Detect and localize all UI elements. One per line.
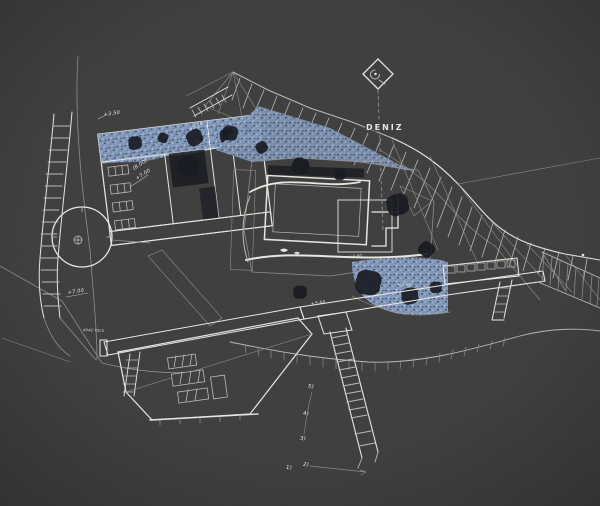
vignette-overlay [0, 0, 600, 506]
site-plan-sketch: ARAÇ YOLU [0, 0, 600, 506]
site-plan-image: ARAÇ YOLU [0, 0, 600, 506]
